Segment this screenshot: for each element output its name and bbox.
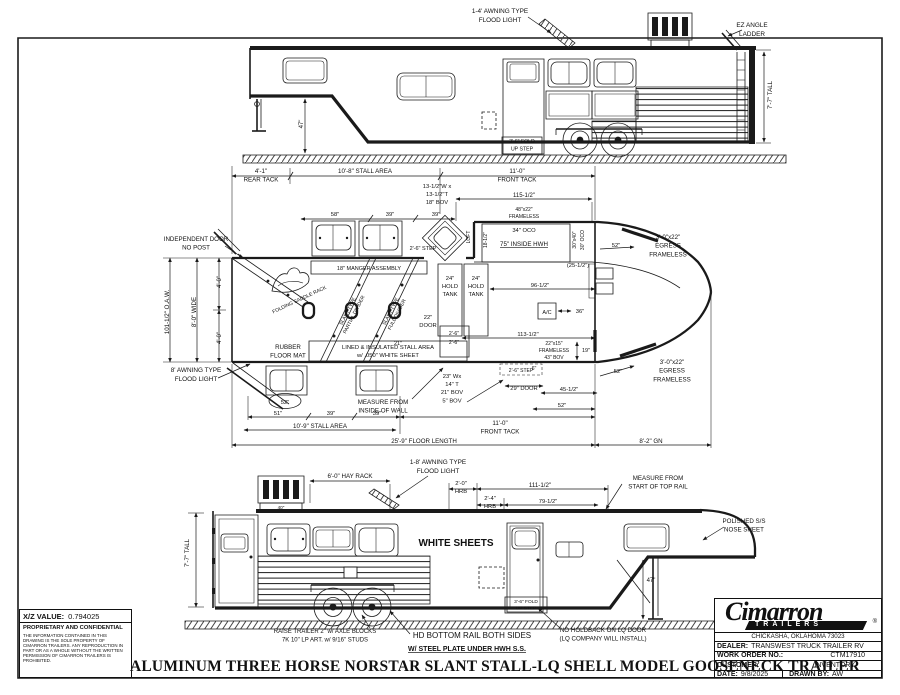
step-label-plan-bottom: 2'-6" STEP — [509, 368, 534, 374]
oco-34-label: 34" OCO — [512, 228, 536, 234]
measure-top-rail-label: MEASURE FROMSTART OF TOP RAIL — [628, 475, 688, 491]
registered-mark: ® — [873, 619, 877, 625]
dim-40: 40" — [278, 505, 285, 510]
step-label-plan-top: 2'-6" STEP — [410, 246, 437, 252]
lq-window — [283, 58, 327, 83]
partial-divider-label: SLANT TYPEPARTIAL DIVIDER — [336, 291, 367, 335]
gooseneck-length-dim: 8'-2" GN — [639, 438, 662, 445]
dim-39-d: 39" — [373, 411, 382, 417]
dim-79-5: 79-1/2" — [539, 499, 558, 505]
nose-sheet-label: POLISHED S/SNOSE SHEET — [723, 518, 766, 534]
hold-tank-label-a: 24"HOLDTANK — [442, 276, 458, 298]
hold-tank-label-b: 24"HOLDTANK — [468, 276, 484, 298]
no-holdback-note: NO HOLDBACK ON LQ DOOR(LQ COMPANY WILL I… — [559, 627, 646, 643]
hwh-window-label: 48"x22"FRAMELESS — [509, 207, 540, 220]
slat-panel — [636, 87, 748, 142]
dim-52-egress-top: 52" — [612, 243, 621, 249]
egress-window-top — [622, 229, 658, 241]
rear-door — [215, 515, 258, 607]
dim-39-b: 39" — [432, 212, 441, 218]
dealer-row: DEALER: TRANSWEST TRUCK TRAILER RV — [715, 641, 881, 651]
ground-line-bottom — [185, 621, 760, 629]
trailer-drawing-sheet: 1-4' AWNING TYPEFLOOD LIGHTEZ ANGLELADDE… — [0, 0, 900, 695]
xz-value: 0.794025 — [68, 612, 99, 621]
fold-up-step-label-bottom-view: 3'-6" FOLDUP STEP — [514, 599, 538, 612]
hold-tank-a — [438, 264, 462, 336]
view-floor-plan — [163, 215, 711, 448]
independent-door-label: INDEPENDENT DOORNO POST — [164, 236, 229, 252]
stall-area-dim: 10'-8" STALL AREA — [338, 168, 393, 175]
dim-58: 58" — [331, 212, 340, 218]
dim-52-egress-bottom: 52" — [614, 369, 623, 375]
dim-19: 19" — [582, 348, 590, 354]
front-tack-dim-bottom: 11'-0"FRONT TACK — [481, 420, 521, 436]
hrb-dim-a: 2'-0"HRB — [455, 481, 467, 495]
saddle-rack-glyph — [272, 268, 309, 292]
inside-hwh-label: 75" INSIDE HWH — [500, 241, 548, 248]
stall-area-dim-bottom: 10'-9" STALL AREA — [293, 423, 348, 430]
dealer-label: DEALER: — [717, 643, 748, 650]
loft-label: LOFT — [466, 231, 472, 244]
hwh-right-size-label: 30"x40" — [572, 231, 578, 248]
front-tack-dim: 11'-0"FRONT TACK — [498, 168, 538, 184]
diamond-loft-window — [422, 215, 467, 260]
dim-52-bottom: 52" — [558, 403, 567, 409]
view-side-elevation-bottom — [185, 476, 760, 634]
oaw-dim: 101-1/2" O.A.W. — [164, 289, 171, 334]
hrb-dim-b: 2'-4"HRB — [484, 496, 496, 510]
roof-rail-bottom-view — [256, 509, 702, 513]
cimarron-logo: Cimarron TRAILERS ® — [715, 599, 881, 632]
xz-value-row: X/Z VALUE: 0.794025 — [20, 610, 131, 623]
dim-39-a: 39" — [386, 212, 395, 218]
measure-inside-wall-label: MEASURE FROMINSIDE OF WALL — [358, 399, 409, 415]
proprietary-body: THE INFORMATION CONTAINED IN THIS DRAWIN… — [20, 631, 131, 666]
fold-up-step-label-top-view: 3'-6" FOLDUP STEP — [509, 139, 535, 152]
dim-36: 36" — [576, 309, 585, 315]
brand-sub: TRAILERS — [755, 621, 822, 628]
xz-value-block: X/Z VALUE: 0.794025 PROPRIETARY AND CONF… — [19, 609, 132, 678]
half-width-dim-a: 4'-0" — [217, 276, 223, 288]
awning-flood-light-label-bottom: 1-8' AWNING TYPEFLOOD LIGHT — [410, 459, 466, 475]
folding-saddle-rack-label: FOLDING SADDLE RACK — [272, 285, 329, 316]
gooseneck-clearance-dim-top-view: 47" — [299, 120, 305, 129]
front-window-label: 22"x15"FRAMELESS43" BOV — [539, 341, 570, 361]
door-22-label: 22"DOOR — [419, 315, 436, 329]
roof-vent-rack — [648, 13, 692, 47]
egress-window-label-bottom: 3'-0"x22"EGRESSFRAMELESS — [653, 359, 690, 383]
gooseneck-wall-bottom — [232, 292, 711, 362]
closet-dim-b: 2'-6" — [449, 340, 459, 346]
ez-angle-ladder-label: EZ ANGLELADDER — [736, 22, 767, 38]
drawing-canvas: 1-4' AWNING TYPEFLOOD LIGHTEZ ANGLELADDE… — [0, 0, 900, 695]
height-dim-bottom-view: 7'-7" TALL — [184, 538, 191, 567]
rear-tack-dim: 4'-1"REAR TACK — [244, 168, 280, 184]
ac-label: A/C — [542, 310, 551, 316]
floor-length-dim: 25'-9" FLOOR LENGTH — [391, 438, 457, 445]
dim-52-oval: 52" — [281, 400, 290, 406]
gooseneck-clearance-dim-bottom-view: 47" — [647, 578, 656, 584]
egress-window-label-top: 3'-0"x22"EGRESSFRAMELESS — [649, 234, 686, 258]
dealer-value: TRANSWEST TRUCK TRAILER RV — [751, 643, 864, 650]
dim-45-5: 45-1/2" — [560, 387, 579, 393]
awning-flood-light-label-top: 1-4' AWNING TYPEFLOOD LIGHT — [472, 8, 528, 24]
hwh-right-oco-label: 30" OCO — [580, 230, 586, 250]
dim-113-5: 113-1/2" — [517, 332, 538, 338]
tack-window-label: 23" Wx14" T21" BOV5" BOV — [441, 374, 463, 404]
closet-dim-a: 2'-6" — [449, 331, 459, 337]
bottom-rail-note: HD BOTTOM RAIL BOTH SIDES — [413, 631, 531, 640]
door-29-label: 29" DOOR — [510, 386, 538, 392]
full-divider-label: SLANT TYPEFULL DIVIDER — [381, 295, 408, 331]
dim-25-5: (25-1/2") — [567, 263, 589, 269]
xz-value-label: X/Z VALUE: — [23, 612, 64, 621]
rubber-mat-label: RUBBERFLOOR MAT — [270, 344, 306, 360]
lined-insulated-label: LINED & INSULATED STALL AREAw/ .050" WHI… — [342, 345, 434, 359]
hwh-left-size-label: 18-1/2" — [483, 232, 489, 248]
awning-flood-light-bottom — [369, 489, 399, 509]
height-dim-top-view: 7'-7" TALL — [767, 80, 774, 109]
dim-115-5: 115-1/2" — [513, 193, 535, 199]
white-sheets-label: WHITE SHEETS — [418, 538, 493, 549]
manger-assembly-label: 18" MANGER ASSEMBLY — [337, 266, 402, 272]
hay-rack-dim: 6'-0" HAY RACK — [327, 473, 373, 480]
ground-line — [243, 155, 786, 163]
brand-address: CHICKASHA, OKLAHOMA 73023 — [715, 632, 881, 641]
dim-111-5: 111-1/2" — [529, 482, 551, 489]
proprietary-title: PROPRIETARY AND CONFIDENTIAL — [20, 623, 131, 631]
wide-dim: 8'-0" WIDE — [191, 297, 198, 327]
steel-plate-note: W/ STEEL PLATE UNDER HWH S.S. — [408, 646, 526, 653]
awning-flood-light-top — [539, 19, 575, 48]
half-width-dim-b: 4'-0" — [217, 332, 223, 344]
loft-window-size-label: 13-1/2"W x13-1/2"T18" BOV — [423, 184, 452, 206]
awning-flood-light-label-plan: 8' AWNING TYPEFLOOD LIGHT — [171, 367, 222, 383]
hold-tank-b — [464, 264, 488, 336]
raise-trailer-note: RAISE TRAILER 2" w/ AXLE BLOCKS7K 10" LP… — [274, 629, 376, 643]
dim-39-c: 39" — [327, 411, 336, 417]
drawing-title: ALUMINUM THREE HORSE NORSTAR SLANT STALL… — [130, 658, 716, 678]
dim-96-5: 96-1/2" — [531, 283, 550, 289]
dim-51: 51" — [274, 411, 283, 417]
